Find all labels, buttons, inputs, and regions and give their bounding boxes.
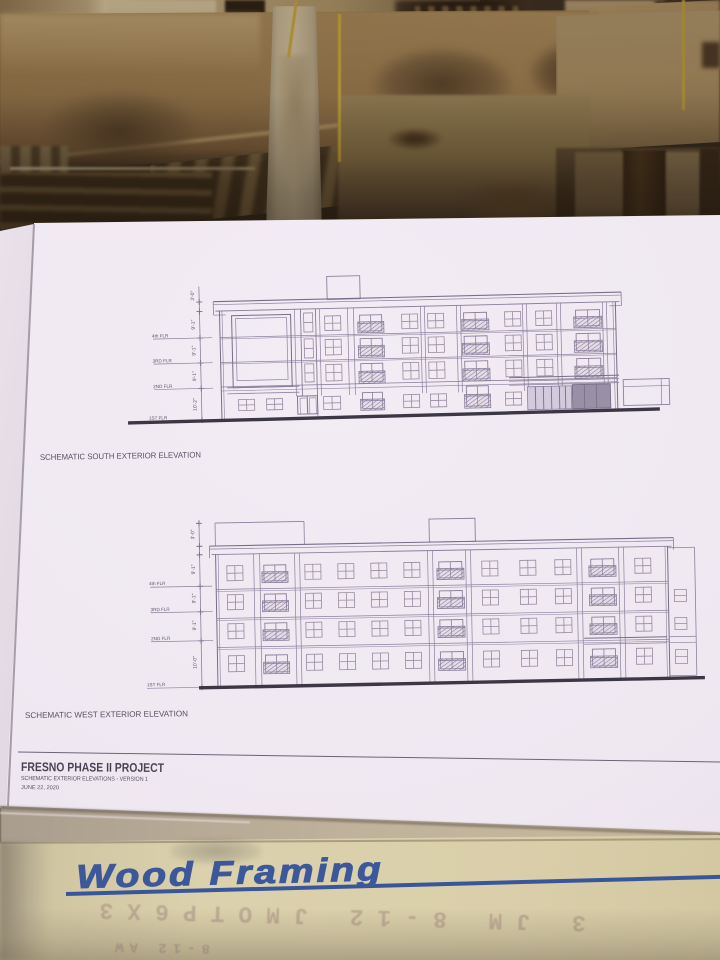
svg-text:SCHEMATIC WEST EXTERIOR ELEVAT: SCHEMATIC WEST EXTERIOR ELEVATION — [25, 709, 188, 720]
svg-text:2ND FLR: 2ND FLR — [153, 384, 173, 389]
svg-text:10'-2": 10'-2" — [192, 398, 198, 411]
svg-text:SCHEMATIC EXTERIOR ELEVATIONS: SCHEMATIC EXTERIOR ELEVATIONS - VERSION … — [21, 776, 149, 783]
svg-text:1ST FLR: 1ST FLR — [149, 415, 168, 420]
svg-text:SCHEMATIC SOUTH EXTERIOR ELEVA: SCHEMATIC SOUTH EXTERIOR ELEVATION — [40, 450, 201, 462]
svg-text:4th FLR: 4th FLR — [149, 581, 166, 586]
svg-text:4th FLR: 4th FLR — [152, 333, 169, 338]
svg-text:2ND FLR: 2ND FLR — [151, 636, 171, 641]
svg-text:3'-0": 3'-0" — [190, 290, 196, 300]
svg-text:9'-1": 9'-1" — [192, 371, 198, 381]
svg-text:9'-1": 9'-1" — [192, 620, 198, 630]
svg-text:JUNE 22, 2020: JUNE 22, 2020 — [21, 785, 59, 791]
svg-text:3'-0": 3'-0" — [190, 529, 196, 539]
svg-text:1ST FLR: 1ST FLR — [147, 682, 166, 687]
svg-text:FRESNO PHASE II PROJECT: FRESNO PHASE II PROJECT — [21, 760, 164, 775]
svg-text:9'-1": 9'-1" — [191, 345, 197, 355]
svg-text:3RD FLR: 3RD FLR — [151, 607, 171, 612]
svg-text:10'-0": 10'-0" — [192, 656, 198, 669]
svg-text:3RD FLR: 3RD FLR — [153, 358, 173, 363]
svg-text:9'-1": 9'-1" — [191, 319, 197, 329]
svg-text:9'-1": 9'-1" — [191, 564, 197, 574]
svg-text:9'-1": 9'-1" — [191, 593, 197, 603]
